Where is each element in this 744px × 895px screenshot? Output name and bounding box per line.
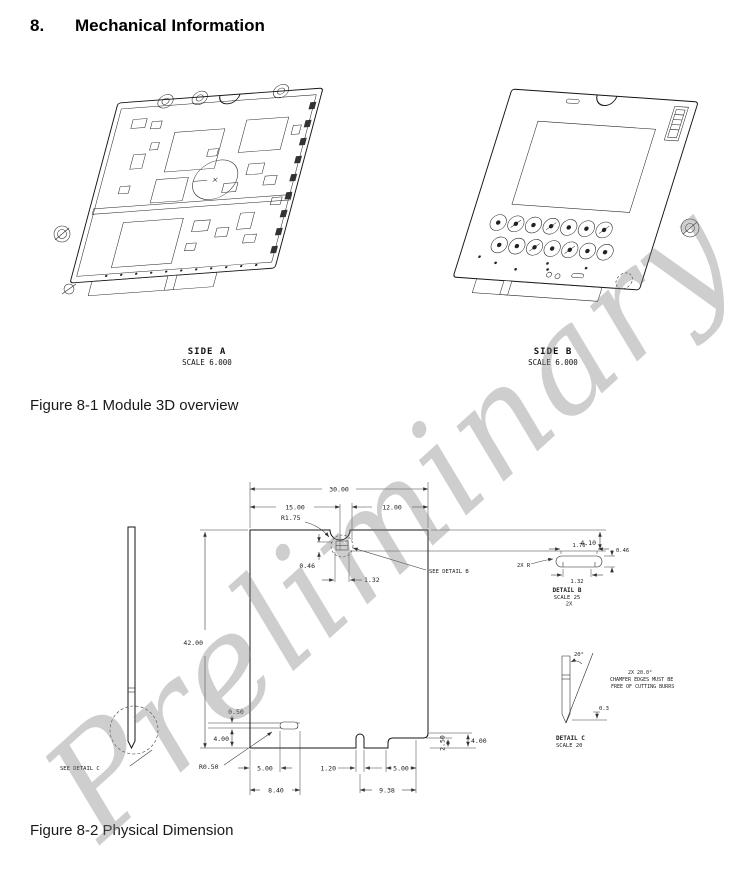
dimensions: 30.00 15.00 12.00 R1.75 4.10 0.46 [183,482,606,795]
module-outline [250,504,428,748]
figure-8-2-caption: Figure 8-2 Physical Dimension [30,822,233,839]
dim-right-width-inner: 5.00 [393,765,409,773]
document-page: 8. Mechanical Information [0,0,744,895]
dim-right-width: 12.00 [382,504,402,512]
dim-right-step-height: 2.50 [439,735,447,751]
dim-left-width: 15.00 [285,504,305,512]
detail-b-view: 1.70 0.46 1.32 2X R DETAIL B SCALE 25 2X [517,543,629,608]
figure-8-1-caption: Figure 8-1 Module 3D overview [30,397,238,414]
side-b-caption: SIDE B SCALE 6.000 [498,347,608,367]
detail-c-angle: 20° [574,652,584,658]
detail-b-height: 0.46 [616,548,629,554]
dim-left-width-inner: 5.00 [257,765,273,773]
dim-total-height: 42.00 [183,639,203,647]
side-a-board [66,81,325,297]
dim-left-width-outer: 8.40 [268,787,284,795]
test-pads [481,214,622,261]
detail-c-title: DETAIL C [556,735,585,742]
side-a-scale: SCALE 6.000 [152,358,262,367]
dim-left-radius: R0.50 [199,763,219,771]
detail-c-note1: 2X 20.0° [628,670,652,676]
dim-notch-radius: R1.75 [281,514,301,522]
side-a-fastener-icon [54,226,76,294]
detail-b-count: 2X [566,602,573,608]
detail-c-scale: SCALE 20 [556,743,583,749]
dim-key-width: 1.20 [320,765,336,773]
dim-tab-offset: 0.46 [299,562,315,570]
dim-tab-width: 1.32 [364,576,380,584]
side-b-fastener-icon [681,219,699,237]
detail-b-width-top: 1.70 [572,543,585,549]
detail-c-view: 20° 2X 20.0° CHAMFER EDGES MUST BE FREE … [556,652,674,749]
dim-right-width-outer: 9.38 [379,787,395,795]
side-b-scale: SCALE 6.000 [498,358,608,367]
detail-c-chamfer: 0.3 [599,706,609,712]
dim-right-bottom-height: 4.00 [471,737,487,745]
figure-8-2-drawing: SEE DETAIL C 30.00 15.00 [0,460,744,815]
see-detail-c-label: SEE DETAIL C [60,766,100,772]
detail-b-width-bottom: 1.32 [570,579,583,585]
side-a-caption: SIDE A SCALE 6.000 [152,347,262,367]
section-heading: 8. Mechanical Information [30,16,265,36]
dim-left-bottom-height: 4.00 [213,735,229,743]
section-number: 8. [30,16,75,36]
detail-b-radius-note: 2X R [517,563,531,569]
side-a-label: SIDE A [152,347,262,357]
detail-c-note3: FREE OF CUTTING BURRS [611,684,674,690]
side-b-label: SIDE B [498,347,608,357]
detail-b-scale: SCALE 25 [554,595,581,601]
side-b-board [449,89,698,304]
side-profile-view: SEE DETAIL C [60,527,158,772]
dim-total-width: 30.00 [329,486,349,494]
dim-left-step: 0.50 [228,708,244,716]
detail-b-title: DETAIL B [553,587,582,594]
detail-c-note2: CHAMFER EDGES MUST BE [610,677,673,683]
section-title: Mechanical Information [75,16,265,36]
see-detail-b-label: SEE DETAIL B [429,569,469,575]
figure-8-1-drawing [0,70,744,390]
